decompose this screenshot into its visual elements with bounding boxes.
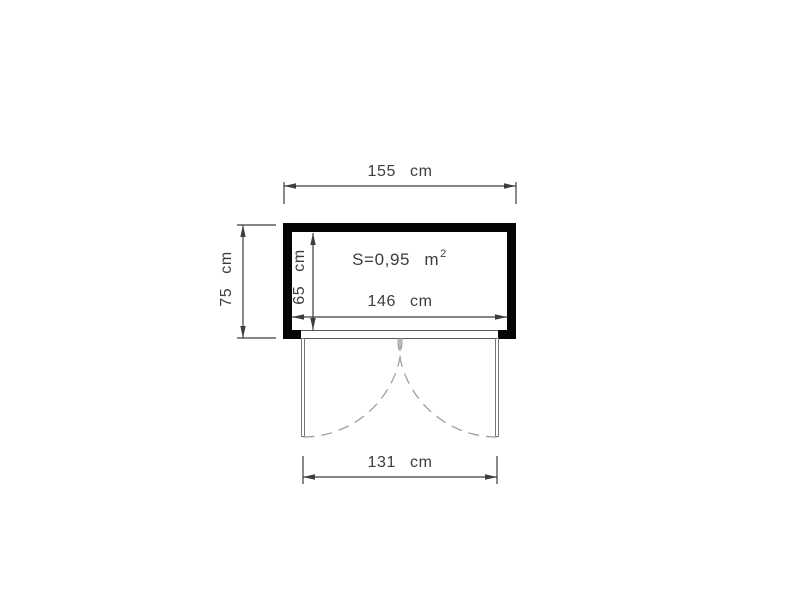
arrowhead-left [303,474,315,479]
arrowhead-right [495,314,507,319]
dim-label-overall-width: 155 cm [367,164,432,180]
dim-label-door-width: 131 cm [367,455,432,471]
dimension-inner-width [292,314,507,319]
arrowhead-left [292,314,304,319]
door-threshold [301,331,498,339]
dimension-inner-depth [310,233,315,330]
arrowhead-right [504,183,516,188]
wall-stub-bottom-left [283,330,301,339]
floor-plan-drawing: 155 cm 75 cm 65 cm S=0,95 m2 146 cm 131 … [0,0,800,600]
area-label-text: S=0,95 m [352,250,439,269]
walls [283,223,516,339]
door-swings [303,338,497,437]
dim-label-inner-width: 146 cm [367,294,432,310]
door-leaves [302,339,499,437]
arrowhead-top [240,225,245,237]
door-swing-arc-left [303,338,402,437]
arrowhead-bottom [310,318,315,330]
arrowhead-right [485,474,497,479]
door-leaf-right [496,339,499,437]
area-label-exponent: 2 [440,248,447,260]
arrowhead-left [284,183,296,188]
door-leaf-left [302,339,305,437]
dimension-overall-width [284,182,516,204]
area-label: S=0,95 m2 [352,250,446,268]
dim-label-overall-depth: 75 cm [219,251,235,307]
arrowhead-top [310,233,315,245]
arrowhead-bottom [240,326,245,338]
dimension-overall-depth [237,225,276,338]
wall-top [283,223,516,232]
door-swing-arc-right [398,338,497,437]
dim-label-inner-depth: 65 cm [292,249,308,305]
wall-stub-bottom-right [498,330,516,339]
wall-right [507,223,516,339]
